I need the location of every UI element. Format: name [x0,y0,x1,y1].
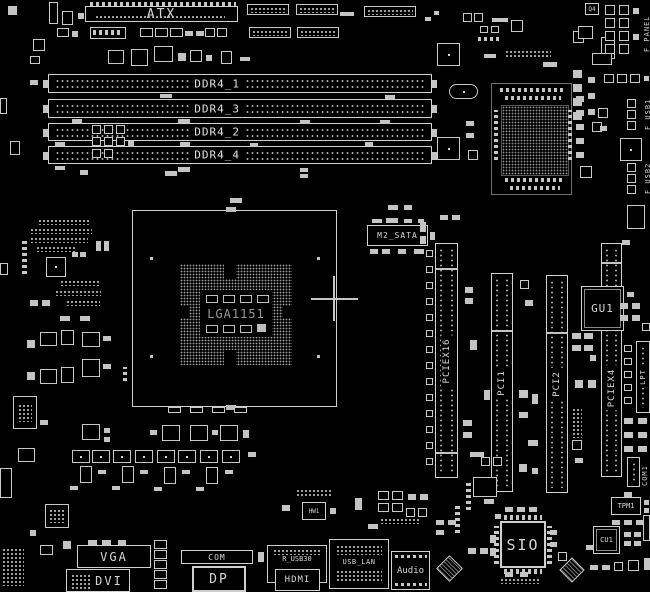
passive-component [10,141,20,155]
passive-component [628,560,639,571]
pad [576,110,584,116]
pciex4-label: PCIEX4 [606,366,618,411]
pin-ticks [505,178,565,182]
pad [317,355,320,358]
pad-array [367,9,413,15]
pad [584,345,593,351]
pad [466,133,474,138]
pin-ticks [568,110,572,160]
pad [72,119,82,123]
passive-component [578,26,593,39]
pad [448,520,456,525]
passive-component [426,362,433,369]
pin-ticks [395,583,427,586]
passive-component [598,108,608,118]
connector-pins [71,574,91,589]
passive-component [131,49,148,66]
pin-ticks [478,37,502,41]
passive-component [61,367,74,383]
pad [470,340,477,350]
pad [340,12,354,16]
pad [573,84,582,92]
hdmi-port[interactable]: HDMI [275,569,320,591]
passive-component [155,28,168,37]
pad [225,470,233,474]
pciex16-slot[interactable]: PCIEX16 [435,243,458,478]
passive-component [627,99,636,108]
passive-component [82,359,100,377]
pad [519,412,528,418]
dp-port[interactable]: DP [192,566,246,592]
pad-array [30,237,88,243]
passive-component [426,394,433,401]
pad [368,524,378,529]
passive-component [605,18,615,28]
pad [230,198,242,203]
crosshair-cursor [333,276,335,321]
pad [365,142,373,146]
pad [644,76,649,81]
header-pins [632,462,636,482]
cpu-socket[interactable]: LGA1151 [132,210,337,407]
pad [624,492,632,497]
pad [385,95,395,99]
pad [240,57,250,61]
pad [80,170,88,175]
com-port[interactable]: COM [181,550,253,564]
pad [590,355,596,361]
chip-unlabeled [135,450,153,463]
cu1-chip[interactable]: CU1 [593,526,620,554]
pin-ticks [90,2,236,6]
pad [624,532,631,537]
pad [532,394,538,404]
chip-unlabeled [200,450,218,463]
pad [300,120,310,124]
pad [638,432,647,438]
passive-component [624,384,632,391]
sio-chip[interactable]: SIO [500,521,546,568]
passive-component [426,410,433,417]
pad [470,452,484,457]
passive-component [57,28,69,37]
pad [63,541,71,549]
ddr4-slot-3[interactable]: DDR4_3 [48,99,432,118]
pad [600,126,607,131]
pin-ticks [494,526,499,564]
pad [602,262,621,264]
passive-component [624,371,632,378]
pad [317,257,320,260]
chip-unlabeled [72,450,90,463]
pad [465,298,473,304]
pad [330,508,336,514]
passive-component [61,330,74,345]
passive-component [140,28,153,37]
pin-ticks [500,88,566,92]
pad [27,340,35,348]
pci2-slot[interactable]: PCI2 [546,275,568,493]
passive-component [104,137,113,146]
pch-bga-grid [501,105,569,176]
pad [104,437,110,442]
passive-component [30,56,40,64]
boardview-canvas[interactable]: ATX Q4 DDR4_1 DDR4_3 DDR4_2 DDR4_4 [0,0,650,592]
pad [103,336,111,341]
pad [463,432,472,438]
hdmi-label: HDMI [276,570,319,590]
pad [634,532,641,537]
com-label: COM [182,551,252,563]
pad [43,152,48,160]
pad [160,94,172,98]
passive-component [642,323,650,331]
passive-component [33,39,45,51]
usb-lan-connector[interactable]: USB_LAN [329,539,389,589]
pad-array [252,30,288,36]
pad [98,470,106,474]
pad [632,303,640,309]
sio-label: SIO [502,523,544,566]
dp-label: DP [194,568,244,590]
pad [104,428,110,433]
pad [420,222,426,232]
lpt-header[interactable]: LPT [636,341,650,413]
passive-component [49,2,58,24]
pad-array [299,7,335,13]
passive-component [558,552,567,561]
pad-array [55,290,101,296]
pad [140,470,148,474]
passive-component [0,263,8,275]
pad [484,390,490,400]
passive-component [619,18,629,28]
pad [529,507,537,512]
pad [622,240,630,245]
pciex16-label: PCIEX16 [441,335,453,386]
passive-component [234,407,247,413]
pad [408,494,416,500]
pad [644,508,649,513]
passive-component [205,28,215,37]
passive-component [392,491,403,500]
pad [154,487,162,491]
pciex4-slot[interactable]: PCIEX4 [601,243,622,477]
pad [30,300,38,306]
pad [104,241,109,251]
dvi-port[interactable]: DVI [66,569,130,592]
pad [212,430,218,435]
passive-component [627,163,636,172]
slot-pins [605,248,609,472]
chip-unlabeled [437,43,460,66]
hw1-label: HW1 [303,503,325,519]
passive-component [418,508,427,517]
passive-component [630,74,640,83]
pad [96,241,101,251]
passive-component [426,298,433,305]
chip-unlabeled [178,450,196,463]
chip-unlabeled [157,450,175,463]
pad [78,13,84,19]
pad [388,205,398,210]
pad-array [60,280,100,286]
pad [432,129,437,137]
diamond-component [559,557,584,582]
pad [30,530,36,536]
passive-component [627,174,636,183]
passive-component [212,407,225,413]
passive-component [154,540,167,549]
pad [525,300,533,306]
passive-component [164,467,176,484]
pad [436,452,457,454]
pad [624,418,633,424]
pin-ticks [93,30,122,35]
passive-component [116,125,125,134]
gu1-label: GU1 [582,287,623,330]
passive-component [605,44,615,54]
pad [624,432,633,438]
passive-component [104,149,113,158]
pci1-label: PCI1 [496,367,508,399]
pad [576,152,584,158]
pad [633,8,639,14]
passive-component [0,468,12,498]
pad [543,62,557,67]
passive-component [474,13,483,22]
pad [178,167,190,172]
pad [118,540,126,545]
pad-array [296,489,332,496]
com1-header[interactable] [627,457,640,487]
pad [632,315,640,321]
pad [572,333,581,339]
pad [243,430,249,438]
pad [180,142,190,146]
chip-unlabeled [113,450,131,463]
passive-component [605,31,615,41]
pad [588,93,595,99]
pad [434,11,439,15]
passive-component [220,425,238,441]
m2-sata-connector[interactable]: M2_SATA [367,225,428,246]
passive-component [491,26,499,33]
passive-component [624,358,632,365]
pad [505,507,513,512]
pad [55,166,65,170]
pad [633,34,639,40]
pad [43,80,48,88]
passive-component [604,74,614,83]
passive-component [627,110,636,119]
pad [573,70,582,78]
passive-component [426,330,433,337]
passive-component [206,467,218,484]
passive-component [617,74,627,83]
pad [492,330,512,332]
passive-component [116,137,125,146]
pad [72,31,78,37]
passive-component [40,369,57,384]
pad [128,141,134,147]
pad [386,218,398,223]
passive-component [82,332,100,347]
pad [70,486,78,490]
pad [590,565,598,570]
passive-component [92,149,101,158]
audio-chip[interactable]: Audio [391,551,430,590]
pad [576,138,584,144]
ddr4-4-label: DDR4_4 [189,149,245,162]
pad-array [250,7,286,13]
cu1-label: CU1 [594,527,619,553]
pad [547,332,567,334]
pad [624,446,633,452]
passive-component [627,121,636,130]
pad [638,418,647,424]
passive-component [154,560,167,569]
pad [178,53,186,61]
passive-component [426,426,433,433]
passive-component [480,26,488,33]
passive-component [62,11,73,25]
pci2-label: PCI2 [551,368,563,400]
chip-unlabeled [92,450,110,463]
pad [436,530,444,535]
com1-header-label[interactable]: COM1 [641,458,649,486]
pad [196,487,204,491]
diamond-component [436,555,463,582]
chip-unlabeled [437,137,460,160]
pad [430,232,435,240]
pad [165,171,177,176]
passive-component [511,20,523,32]
passive-component [108,50,124,64]
passive-component [624,397,632,404]
hw1-chip[interactable]: HW1 [302,502,326,520]
pad [103,364,111,369]
pad [528,440,538,446]
pad [420,236,426,244]
passive-component [426,442,433,449]
pad [575,380,583,388]
passive-component [170,28,183,37]
pad [102,540,111,545]
pad [495,514,501,519]
pad [300,168,308,172]
pad [465,287,473,293]
q4-label: Q4 [586,4,598,14]
pad [43,105,48,113]
passive-component [426,250,433,257]
passive-component [619,5,629,15]
passive-component [493,457,502,466]
passive-component [627,185,636,194]
pad [624,541,631,546]
pad [150,355,153,358]
pad [620,303,628,309]
pad [602,565,610,570]
pad [634,541,641,546]
f-usb1-header-label[interactable]: F_USB1 [644,100,650,130]
pad-array [2,548,24,586]
pad-array [95,15,225,20]
passive-component [426,346,433,353]
passive-component [154,570,167,579]
pad [88,540,97,545]
pin-ticks [504,569,542,574]
pad-array [300,30,336,36]
pad-array [505,50,551,58]
pad [586,545,594,550]
pad [624,520,632,525]
pad [206,55,212,61]
gu1-chip[interactable]: GU1 [581,286,624,331]
pad [612,520,620,525]
pin-ticks [504,515,542,520]
tpm1-header[interactable]: TPM1 [611,497,641,515]
passive-component [154,550,167,559]
pad [463,420,472,426]
ddr4-slot-1[interactable]: DDR4_1 [48,74,432,93]
pad-array [30,228,92,234]
pad [492,18,508,22]
pad [480,548,488,554]
passive-component [426,378,433,385]
vga-port[interactable]: VGA [77,545,151,568]
pad [519,464,527,472]
passive-component [92,125,101,134]
f-panel-header-label[interactable]: F_PANEL [643,8,650,52]
pad [576,124,584,130]
pad [178,119,190,123]
pad-array [66,300,100,306]
pad [432,105,437,113]
pad [72,252,78,257]
pad-array [36,246,76,252]
socket-center-keepout: LGA1151 [200,290,272,337]
pad [382,249,390,254]
passive-component [221,51,232,64]
pad [372,219,382,223]
chip-unlabeled [46,257,66,277]
pad [468,548,476,554]
pad [404,219,412,223]
passive-component [463,13,472,22]
pad [370,249,378,254]
pad [55,142,65,146]
q4-chip[interactable]: Q4 [585,3,599,15]
passive-component [619,44,629,54]
pad [112,486,120,490]
pad [627,292,634,297]
chip-unlabeled [222,450,240,463]
ddr4-1-label: DDR4_1 [189,77,245,90]
passive-component [217,28,227,37]
pad [42,300,50,306]
f-usb2-header-label[interactable]: F_USB2 [644,162,650,194]
chip-unlabeled [620,138,642,161]
pad [150,430,157,435]
passive-component [473,477,497,497]
pad-array [380,518,420,524]
pad [43,129,48,137]
pad [436,268,457,270]
pad-array [500,578,540,584]
pad [182,470,190,474]
pad [258,552,264,562]
